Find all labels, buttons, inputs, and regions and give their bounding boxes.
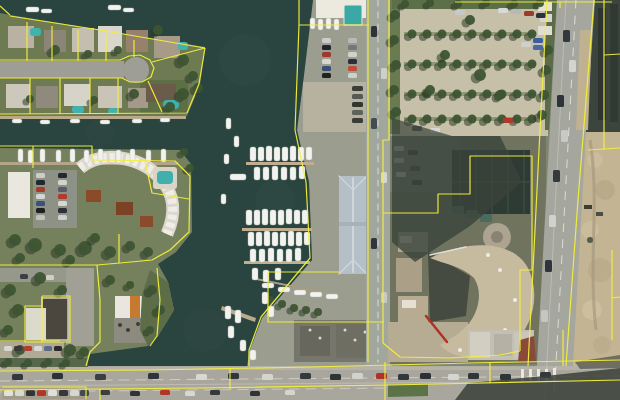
tree (474, 69, 486, 81)
boat (98, 149, 103, 161)
car (262, 374, 273, 380)
boat (274, 147, 280, 161)
house-roof (72, 28, 94, 52)
boat (264, 231, 270, 246)
tree (438, 30, 447, 39)
tree (114, 46, 122, 54)
car (498, 8, 508, 13)
car (569, 60, 576, 72)
red-dirt-patch (518, 336, 536, 362)
tree (537, 110, 547, 120)
pool (72, 106, 84, 113)
boat (250, 147, 256, 161)
tree (24, 359, 32, 367)
car (521, 42, 531, 47)
tree (495, 90, 505, 100)
teal-pavilion (344, 5, 362, 25)
tree (28, 238, 42, 252)
car (352, 94, 363, 99)
tree (498, 30, 507, 39)
tree (528, 30, 537, 39)
house-roof (154, 36, 180, 58)
roof-unit (136, 322, 140, 326)
boat (280, 232, 286, 246)
boat (286, 249, 292, 262)
car (285, 390, 295, 395)
tree (165, 102, 175, 112)
car (348, 52, 357, 57)
car (15, 390, 24, 396)
boat (288, 231, 294, 246)
car (322, 66, 331, 71)
tree (423, 60, 432, 69)
car (348, 66, 357, 71)
parking-green-edge (392, 0, 548, 9)
car (536, 13, 546, 18)
car (4, 390, 13, 396)
tree (483, 115, 492, 124)
car (36, 187, 45, 192)
tree (498, 60, 507, 69)
boat (268, 248, 274, 262)
tree (440, 50, 450, 60)
boat (254, 210, 260, 225)
car (160, 390, 170, 395)
boat (235, 310, 241, 323)
tree (180, 148, 188, 156)
construction-block (396, 258, 422, 292)
car (37, 390, 46, 396)
car (352, 102, 363, 107)
boat (41, 9, 52, 13)
tree (62, 359, 70, 367)
boat (12, 119, 22, 123)
car (54, 346, 62, 351)
boat (272, 166, 278, 180)
boat (310, 18, 315, 29)
tree (177, 88, 189, 100)
house-roof (36, 86, 58, 108)
pier (242, 228, 312, 231)
tree (425, 85, 435, 95)
car (545, 260, 552, 272)
tree (302, 306, 310, 314)
tree (54, 244, 66, 256)
car (348, 73, 357, 78)
pool (157, 171, 173, 184)
boat (259, 249, 265, 262)
roof-unit (118, 323, 122, 327)
car (58, 173, 67, 178)
car (36, 180, 45, 185)
dirt-mottle (587, 152, 603, 168)
median-green (388, 384, 428, 397)
boat (326, 18, 331, 29)
boat (281, 167, 287, 180)
tree (186, 164, 194, 172)
tree (454, 0, 462, 8)
white-roof-bldg (26, 308, 46, 340)
boat (84, 150, 89, 163)
tree (408, 90, 417, 99)
boat (224, 154, 229, 164)
car (455, 10, 465, 15)
boat (40, 149, 45, 162)
tree (65, 255, 75, 265)
tree (423, 30, 432, 39)
roof-unit (344, 329, 347, 332)
house-roof (8, 26, 34, 48)
dirt-mottle (595, 180, 615, 200)
boat (262, 292, 268, 304)
boat (326, 294, 338, 299)
boat (272, 232, 278, 246)
car (371, 118, 377, 129)
water-sheen (219, 34, 271, 86)
roof-notch (339, 222, 367, 226)
tree (453, 115, 462, 124)
boat (286, 209, 292, 224)
tree (528, 60, 537, 69)
boat (70, 149, 75, 162)
car (58, 187, 67, 192)
courtyard-center (491, 231, 503, 243)
car (36, 173, 45, 178)
car (34, 346, 42, 351)
boat (132, 119, 142, 123)
tree (438, 115, 447, 124)
boat (40, 120, 50, 124)
car (468, 373, 479, 379)
tree (390, 10, 400, 20)
car (300, 373, 311, 379)
orange-roof (130, 296, 140, 318)
car (352, 373, 363, 379)
boat (28, 150, 33, 163)
car (58, 201, 67, 206)
shadow-bldg-strip (598, 8, 606, 120)
car (381, 172, 387, 183)
tree (408, 30, 417, 39)
tree (104, 246, 116, 258)
car (511, 9, 521, 14)
car (352, 86, 363, 91)
tree (57, 285, 67, 295)
tree (391, 60, 401, 70)
car (352, 118, 363, 123)
car (58, 194, 67, 199)
boat (226, 118, 231, 129)
car (70, 390, 79, 396)
boat (225, 306, 231, 319)
boat (250, 249, 256, 262)
tree (126, 281, 134, 289)
equipment (587, 237, 593, 243)
tree (12, 304, 24, 316)
car (36, 201, 45, 206)
boat (263, 167, 269, 180)
car (533, 38, 543, 43)
car (210, 390, 220, 395)
boat (254, 167, 260, 180)
boat (234, 136, 239, 147)
boat (116, 150, 121, 163)
pool (30, 28, 41, 36)
debris (513, 298, 517, 302)
boat (221, 194, 226, 204)
boat (230, 174, 246, 180)
car (348, 59, 357, 64)
tree (290, 304, 298, 312)
boat (228, 326, 234, 338)
tree (64, 344, 76, 356)
tree (468, 90, 477, 99)
car (100, 390, 110, 395)
car (196, 374, 207, 380)
tree (468, 115, 477, 124)
boat (256, 232, 262, 246)
boat (282, 147, 288, 161)
boat (240, 340, 246, 351)
shadow-bldg-strip (610, 4, 618, 122)
tree (389, 85, 399, 95)
car (52, 373, 63, 379)
boat (277, 249, 283, 262)
boat (108, 5, 121, 10)
boat (295, 248, 301, 261)
car (381, 68, 387, 79)
boat (100, 120, 110, 124)
car (557, 95, 564, 107)
boat (123, 8, 134, 12)
boat (161, 149, 166, 162)
roof-unit (354, 339, 357, 342)
dirt-mottle (581, 221, 599, 239)
boat (294, 210, 300, 224)
tree (188, 71, 198, 81)
car (371, 238, 377, 249)
red-roof-bldg (116, 202, 133, 215)
tree (79, 347, 89, 357)
water-sheen (183, 308, 227, 352)
boat (252, 268, 258, 280)
roof-unit (309, 329, 312, 332)
boat (258, 147, 264, 161)
tree (278, 300, 286, 308)
house-roof (64, 84, 90, 106)
culdesac-street (0, 61, 124, 78)
tree (513, 30, 522, 39)
car (322, 59, 331, 64)
dirt-mottle (582, 300, 602, 320)
car (12, 374, 23, 380)
tree (153, 25, 163, 35)
roof-unit (319, 337, 322, 340)
car (322, 45, 331, 50)
tree (4, 358, 12, 366)
car (553, 170, 560, 182)
car (533, 45, 543, 50)
car (563, 30, 570, 42)
car (322, 38, 331, 43)
boat (270, 210, 276, 225)
tree (528, 90, 537, 99)
boat (70, 119, 80, 123)
car (500, 374, 511, 380)
debris (486, 253, 490, 257)
car (549, 215, 556, 227)
boat (160, 118, 170, 122)
boat (275, 268, 281, 280)
tree (483, 30, 492, 39)
tree (423, 115, 432, 124)
pier (246, 162, 314, 165)
culdesac-bulb (123, 57, 149, 83)
boat (310, 292, 322, 297)
car (322, 73, 331, 78)
car (48, 390, 57, 396)
tree (408, 115, 417, 124)
car (185, 391, 195, 396)
car (381, 292, 387, 303)
boat (246, 210, 252, 225)
boat (266, 146, 272, 161)
boat (294, 290, 306, 295)
white-roof-bit (402, 300, 416, 308)
car (250, 391, 260, 396)
equipment (584, 205, 592, 209)
boat (290, 146, 296, 161)
car (371, 26, 377, 37)
car (130, 391, 140, 396)
car (148, 373, 159, 379)
car (26, 390, 35, 396)
boat (290, 167, 296, 180)
office-bldg (8, 172, 30, 218)
debris (458, 348, 462, 352)
tree (453, 60, 462, 69)
tree (84, 50, 92, 58)
car (352, 110, 363, 115)
car (36, 194, 45, 199)
dock (0, 116, 186, 119)
tree (44, 358, 52, 366)
tree (146, 326, 154, 334)
car (59, 390, 68, 396)
tree (483, 60, 492, 69)
tree (453, 90, 462, 99)
tree (129, 89, 139, 99)
car (503, 118, 513, 123)
car (80, 390, 89, 396)
car (95, 374, 106, 380)
car (420, 373, 431, 379)
tree (510, 0, 518, 8)
equipment (596, 212, 603, 216)
car (24, 346, 32, 351)
red-roof-bldg (140, 216, 153, 227)
tree (125, 241, 135, 251)
tree (34, 272, 46, 284)
tree (513, 90, 522, 99)
car (58, 180, 67, 185)
tree (9, 234, 21, 246)
boat (250, 350, 256, 360)
boat (262, 209, 268, 225)
industrial-roof (300, 326, 330, 356)
tree (177, 54, 189, 66)
boat (248, 232, 254, 246)
boat (56, 150, 61, 162)
dirt-mottle (593, 336, 611, 354)
south-roof (470, 332, 490, 358)
tree (513, 60, 522, 69)
tree (193, 83, 203, 93)
car (46, 275, 54, 280)
aerial-map-canvas[interactable] (0, 0, 620, 400)
tree (539, 90, 549, 100)
car (58, 215, 67, 220)
tree (90, 233, 100, 243)
car (14, 346, 22, 351)
tree (15, 253, 25, 263)
car (44, 346, 52, 351)
tree (408, 60, 417, 69)
tree (401, 0, 409, 8)
car (524, 11, 534, 16)
red-roof-bldg (86, 190, 101, 202)
car (322, 52, 331, 57)
car (36, 215, 45, 220)
car (348, 38, 357, 43)
boat (306, 147, 312, 160)
roof-unit (126, 328, 130, 332)
tree (143, 247, 153, 257)
tree (468, 60, 477, 69)
tree (465, 15, 475, 25)
boat (296, 232, 302, 246)
car (4, 346, 12, 351)
car (36, 208, 45, 213)
car (330, 374, 341, 380)
car (58, 208, 67, 213)
tree (389, 35, 399, 45)
debris (498, 268, 502, 272)
tree (438, 90, 447, 99)
tree (483, 90, 492, 99)
tree (3, 325, 13, 335)
car (348, 45, 357, 50)
car (541, 310, 548, 322)
boat (26, 7, 39, 12)
tree (453, 30, 462, 39)
boat (278, 210, 284, 225)
tree (105, 275, 115, 285)
car (398, 374, 409, 380)
tree (90, 96, 98, 104)
tree (468, 30, 477, 39)
car (561, 130, 568, 142)
tree (314, 308, 322, 316)
tree (4, 284, 16, 296)
tree (513, 115, 522, 124)
tree (147, 285, 157, 295)
car (20, 274, 28, 279)
construction-block (398, 296, 428, 322)
boat (18, 149, 23, 162)
house-roof (126, 30, 148, 52)
aerial-map-view[interactable] (0, 0, 620, 400)
